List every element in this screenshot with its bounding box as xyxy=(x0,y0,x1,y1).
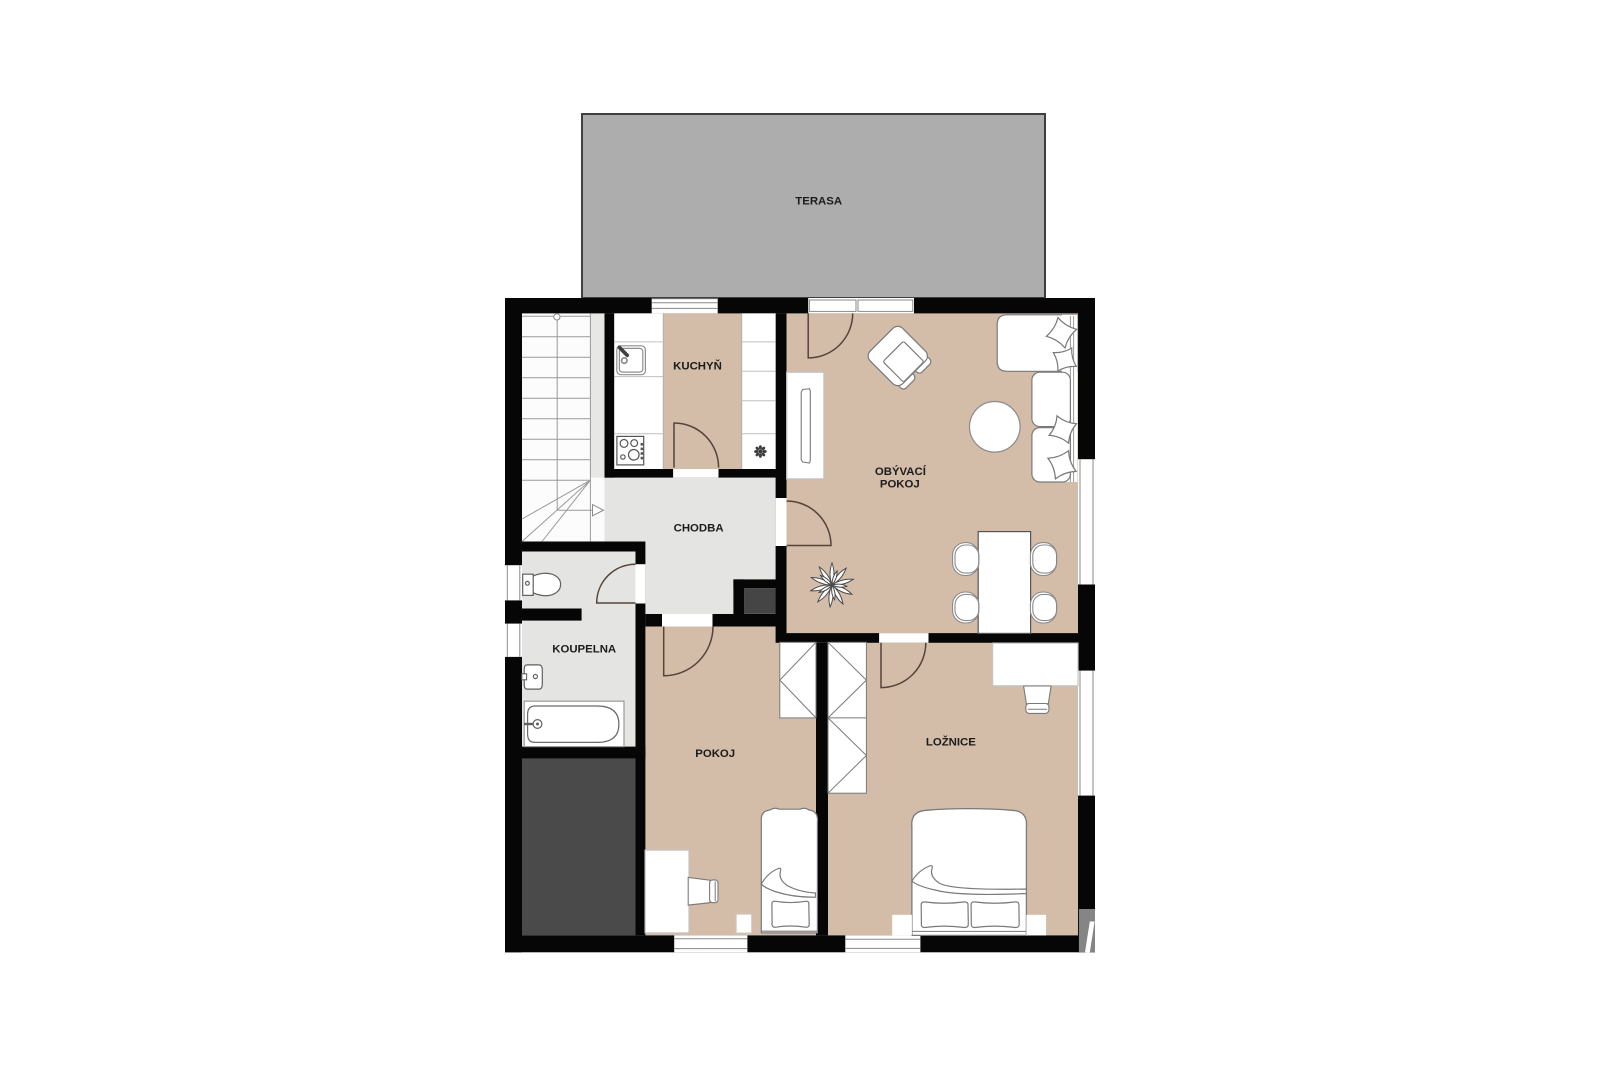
svg-text:LOŽNICE: LOŽNICE xyxy=(926,736,976,749)
svg-text:TERASA: TERASA xyxy=(795,196,842,208)
svg-text:OBÝVACÍ: OBÝVACÍ xyxy=(875,465,927,478)
svg-text:POKOJ: POKOJ xyxy=(880,479,920,491)
svg-text:CHODBA: CHODBA xyxy=(674,523,724,535)
svg-text:KUCHYŇ: KUCHYŇ xyxy=(673,359,722,372)
svg-text:POKOJ: POKOJ xyxy=(695,748,735,760)
svg-text:KOUPELNA: KOUPELNA xyxy=(552,644,616,656)
